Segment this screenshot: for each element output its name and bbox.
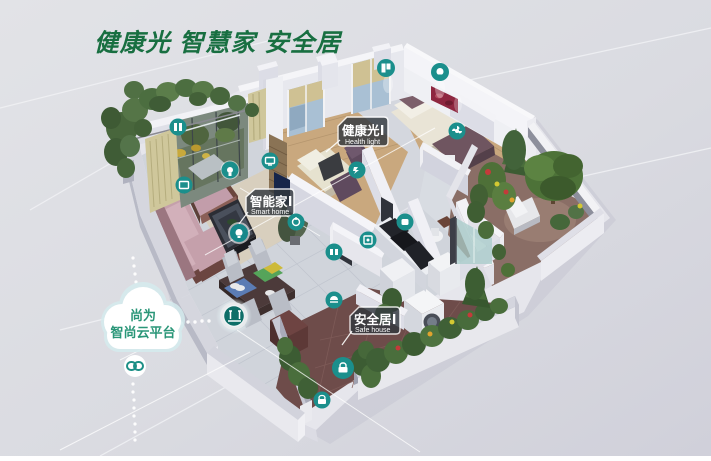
svg-text:尚为: 尚为 (130, 308, 156, 323)
svg-text:Health light: Health light (345, 139, 380, 146)
svg-text:智尚云平台: 智尚云平台 (110, 325, 175, 340)
svg-text:健康光: 健康光 (342, 123, 380, 138)
svg-text:Smart home: Smart home (251, 209, 289, 216)
svg-text:健康光 智慧家 安全居: 健康光 智慧家 安全居 (94, 29, 343, 57)
svg-text:智能家: 智能家 (249, 194, 288, 209)
svg-text:安全居: 安全居 (354, 312, 392, 327)
svg-text:Safe house: Safe house (355, 327, 391, 334)
